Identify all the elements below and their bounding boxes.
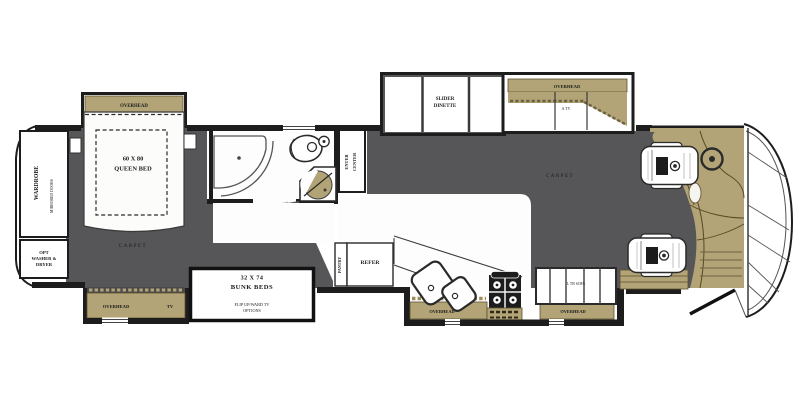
svg-text:SLIDER: SLIDER [436, 97, 455, 102]
svg-text:OVERHEAD: OVERHEAD [103, 304, 130, 309]
svg-text:A TV: A TV [562, 106, 571, 111]
svg-text:MIRRORED DOORS: MIRRORED DOORS [50, 179, 54, 213]
svg-text:CARPET: CARPET [119, 244, 147, 249]
svg-text:DRYER: DRYER [36, 262, 53, 267]
svg-text:32 X 74: 32 X 74 [241, 275, 264, 282]
svg-text:OVERHEAD: OVERHEAD [560, 309, 585, 314]
svg-text:PANTRY: PANTRY [337, 257, 342, 273]
svg-text:QUEEN BED: QUEEN BED [114, 166, 152, 173]
svg-text:BUNK BEDS: BUNK BEDS [231, 284, 273, 291]
svg-text:CENTER: CENTER [352, 152, 357, 171]
svg-text:DINETTE: DINETTE [434, 104, 457, 109]
svg-text:TV: TV [167, 304, 174, 309]
svg-text:OVERHEAD: OVERHEAD [554, 84, 581, 89]
svg-text:L TB SOFA: L TB SOFA [567, 282, 586, 286]
svg-text:REFER: REFER [361, 260, 381, 266]
svg-text:WASHER &: WASHER & [32, 256, 57, 261]
svg-text:OVERHEAD: OVERHEAD [429, 309, 454, 314]
svg-text:WARDROBE: WARDROBE [34, 166, 40, 200]
svg-text:OPT: OPT [39, 250, 48, 255]
svg-text:CARPET: CARPET [546, 174, 574, 179]
svg-text:FLIP UP/WARD TV: FLIP UP/WARD TV [235, 302, 270, 307]
svg-text:OVERHEAD: OVERHEAD [120, 104, 148, 109]
svg-text:60 X 80: 60 X 80 [123, 156, 144, 163]
svg-text:OPTIONS: OPTIONS [243, 308, 261, 313]
svg-text:ENTER: ENTER [344, 154, 349, 170]
